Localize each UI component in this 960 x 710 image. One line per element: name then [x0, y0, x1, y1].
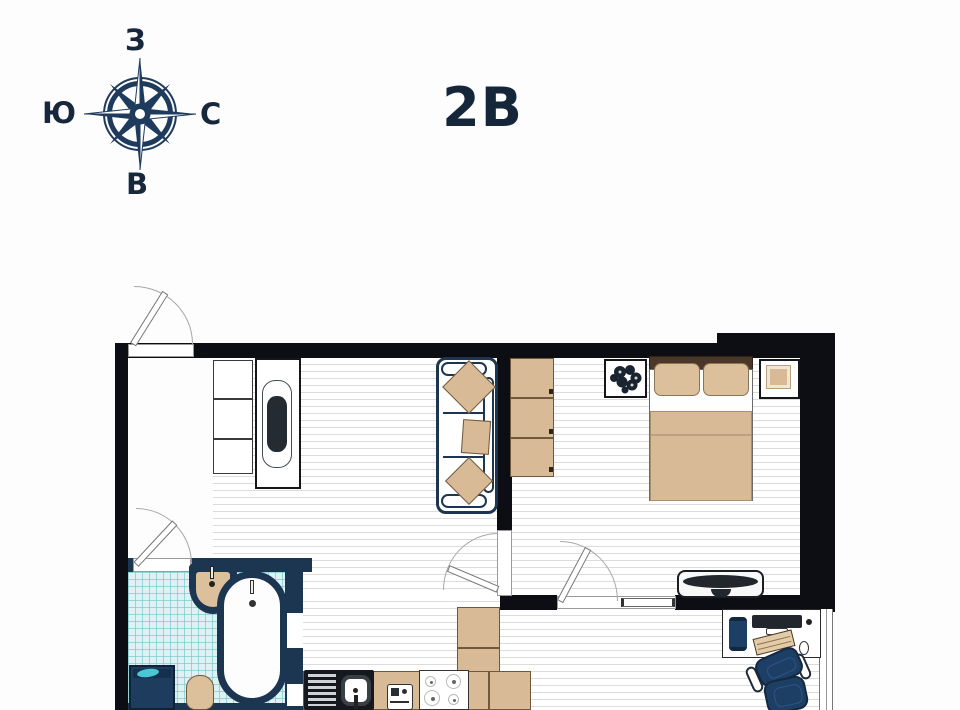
bed-pillow-right	[703, 363, 749, 396]
sink-drain	[353, 688, 358, 693]
page-title: 2В	[395, 76, 570, 139]
sink-faucet	[354, 695, 358, 709]
bedside-frame-inner	[767, 366, 790, 388]
sofa-cushion-line	[443, 456, 485, 458]
entrance-door-threshold	[128, 344, 194, 357]
monitor-icon	[752, 615, 802, 628]
wardrobe-handle	[549, 389, 553, 394]
compass-label-west: З	[125, 26, 146, 55]
bedroom-tv-icon	[683, 575, 758, 588]
appliance-detail	[402, 689, 407, 694]
bed-pillow-left	[654, 363, 700, 396]
shelf-divider	[214, 438, 252, 440]
bedroom-tv-console	[677, 570, 764, 598]
window-center-line	[826, 609, 827, 710]
workspace-window	[819, 609, 833, 710]
wardrobe-divider	[511, 397, 553, 399]
kitchen-counter-column	[457, 607, 500, 672]
burner-icon	[425, 676, 436, 687]
burner-icon	[448, 694, 459, 705]
wardrobe	[510, 358, 554, 477]
wall-bedroom-bottom-left	[500, 595, 557, 610]
bathtub-faucet	[250, 580, 254, 594]
bathtub-drain	[249, 600, 256, 607]
wardrobe-handle	[549, 429, 553, 434]
compass-label-south: Ю	[42, 99, 76, 128]
bathroom-sink-faucet	[210, 566, 214, 579]
counter-divider	[488, 672, 490, 709]
wall-left	[115, 343, 128, 710]
tv-icon	[267, 396, 287, 452]
appliance-detail	[391, 688, 399, 696]
desk-accessory	[729, 617, 747, 651]
sink-drainboard	[308, 674, 336, 706]
bed-blanket	[650, 411, 752, 501]
compass-label-north: С	[200, 100, 221, 129]
small-appliance	[387, 684, 413, 710]
burner-icon	[446, 674, 461, 689]
wardrobe-handle	[549, 467, 553, 472]
plant-icon	[606, 361, 644, 395]
desk-button	[806, 619, 812, 625]
bathroom-sink-drain	[209, 581, 215, 587]
bedroom-tv-stand	[711, 589, 731, 597]
shelf-divider	[214, 398, 252, 400]
bathroom-wall-niche-2	[287, 684, 303, 706]
compass-label-east: В	[126, 170, 148, 199]
appliance-detail	[390, 701, 409, 703]
bedroom-door-fixed-panel	[621, 598, 675, 607]
kitchen-sink-unit	[304, 670, 374, 710]
compass-rose-icon	[83, 57, 197, 171]
burner-icon	[424, 690, 440, 706]
bathroom-wall-niche-1	[287, 613, 303, 648]
wall-plant-frame	[604, 359, 647, 398]
tv-console	[255, 358, 301, 489]
washing-machine	[129, 665, 175, 710]
stove	[419, 670, 469, 710]
bedside-frame	[759, 359, 800, 399]
wall-right	[800, 333, 835, 612]
counter-divider	[458, 647, 499, 649]
floor-plan-page: З Ю С В 2В	[0, 0, 960, 710]
desk	[722, 609, 821, 658]
sofa-cushion-line	[443, 412, 485, 414]
compass-rose	[83, 57, 197, 171]
toilet	[186, 675, 214, 710]
bathtub	[217, 571, 287, 705]
wardrobe-divider	[511, 437, 553, 439]
blanket-fold-line	[651, 434, 751, 436]
wall-top-left	[115, 343, 717, 358]
shelf-unit	[213, 360, 253, 474]
sofa-pillow	[461, 419, 491, 455]
